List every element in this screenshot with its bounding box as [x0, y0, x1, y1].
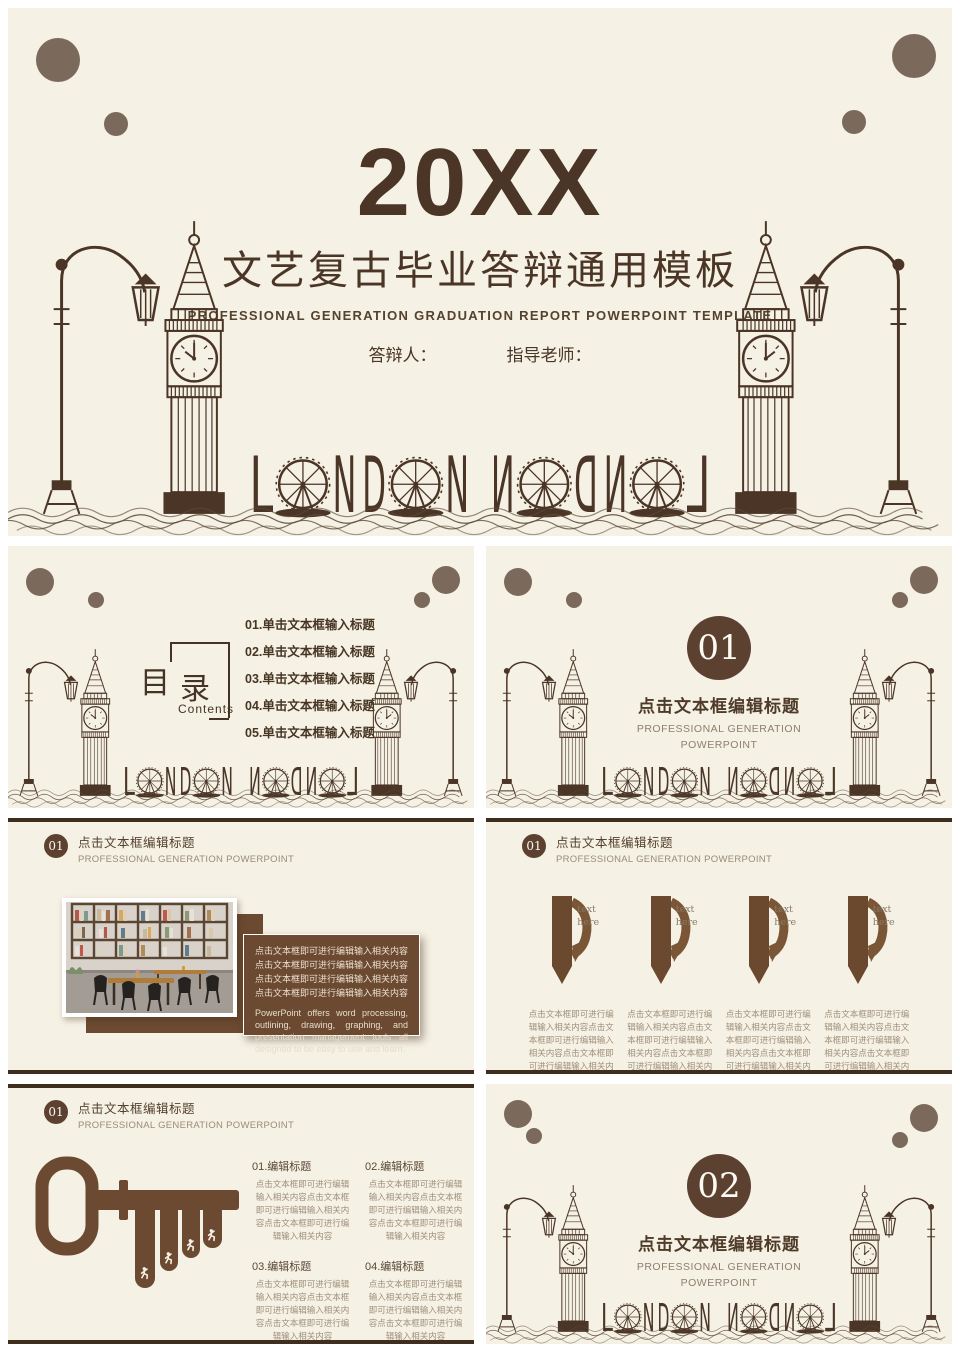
header-subtitle: PROFESSIONAL GENERATION POWERPOINT — [78, 854, 294, 865]
key-block-heading: 02.编辑标题 — [365, 1158, 466, 1174]
ribbon-item: text here 点击文本框即可进行编辑输入相关内容点击文本框即可进行编辑输入… — [719, 896, 818, 1074]
library-photo — [62, 898, 237, 1017]
ribbon-content-slide[interactable]: 01 点击文本框编辑标题 PROFESSIONAL GENERATION POW… — [486, 818, 952, 1074]
ribbon-label-line2: here — [873, 917, 895, 930]
ribbon-label-line1: text — [676, 904, 698, 917]
decor-dot — [892, 592, 908, 608]
header-title: 点击文本框编辑标题 — [78, 1098, 294, 1117]
header-title: 点击文本框编辑标题 — [78, 832, 294, 851]
library-photo-illustration — [66, 902, 233, 1013]
waves-band — [8, 786, 474, 808]
london-scene-left — [24, 215, 479, 522]
key-block: 02.编辑标题 点击文本框即可进行编辑输入相关内容点击文本框即可进行编辑输入相关… — [365, 1158, 466, 1243]
key-block-body: 点击文本框即可进行编辑输入相关内容点击文本框即可进行编辑输入相关内容点击文本框即… — [365, 1178, 466, 1243]
bottom-rule — [8, 1070, 474, 1074]
key-block-body: 点击文本框即可进行编辑输入相关内容点击文本框即可进行编辑输入相关内容点击文本框即… — [252, 1278, 353, 1343]
contents-slide[interactable]: 目 录 Contents 01.单击文本框输入标题 02.单击文本框输入标题 0… — [8, 546, 474, 808]
ribbon-label-line1: text — [774, 904, 796, 917]
ribbon-body-text: 点击文本框即可进行编辑输入相关内容点击文本框即可进行编辑输入相关内容点击文本框即… — [626, 1008, 714, 1074]
cover-slide[interactable]: 20XX 文艺复古毕业答辩通用模板 PROFESSIONAL GENERATIO… — [8, 8, 952, 536]
decor-dot — [88, 592, 104, 608]
ribbon-item: text here 点击文本框即可进行编辑输入相关内容点击文本框即可进行编辑输入… — [522, 896, 621, 1074]
top-rule — [8, 818, 474, 822]
key-block: 04.编辑标题 点击文本框即可进行编辑输入相关内容点击文本框即可进行编辑输入相关… — [365, 1258, 466, 1343]
section-01-slide[interactable]: 01 点击文本框编辑标题 PROFESSIONAL GENERATION POW… — [486, 546, 952, 808]
key-block-heading: 03.编辑标题 — [252, 1258, 353, 1274]
decor-dot — [26, 568, 54, 596]
ribbon-body-text: 点击文本框即可进行编辑输入相关内容点击文本框即可进行编辑输入相关内容点击文本框即… — [724, 1008, 812, 1074]
header-number-badge: 01 — [44, 834, 68, 858]
decor-dot — [526, 1128, 542, 1144]
key-text-blocks: 01.编辑标题 点击文本框即可进行编辑输入相关内容点击文本框即可进行编辑输入相关… — [252, 1158, 466, 1343]
section-02-slide[interactable]: 02 点击文本框编辑标题 PROFESSIONAL GENERATION POW… — [486, 1084, 952, 1344]
decor-dot — [566, 592, 582, 608]
decor-dot — [36, 38, 80, 82]
header-subtitle: PROFESSIONAL GENERATION POWERPOINT — [78, 1120, 294, 1131]
waves-band — [486, 1322, 952, 1344]
decor-dot — [432, 566, 460, 594]
ribbon-item: text here 点击文本框即可进行编辑输入相关内容点击文本框即可进行编辑输入… — [621, 896, 720, 1074]
london-scene-left — [488, 1182, 716, 1336]
london-scene-left — [10, 646, 238, 800]
decor-dot — [104, 112, 128, 136]
ribbon-label-line2: here — [774, 917, 796, 930]
decor-dot — [892, 34, 936, 78]
ribbon-body-text: 点击文本框即可进行编辑输入相关内容点击文本框即可进行编辑输入相关内容点击文本框即… — [823, 1008, 911, 1074]
london-scene-left — [488, 646, 716, 800]
ribbon-item: text here 点击文本框即可进行编辑输入相关内容点击文本框即可进行编辑输入… — [818, 896, 917, 1074]
top-rule — [8, 1084, 474, 1088]
ribbon-label-line2: here — [577, 917, 599, 930]
bottom-rule — [486, 1070, 952, 1074]
ribbon-label-line1: text — [577, 904, 599, 917]
london-scene-right-mirrored — [722, 1182, 950, 1336]
key-block-heading: 04.编辑标题 — [365, 1258, 466, 1274]
key-block: 01.编辑标题 点击文本框即可进行编辑输入相关内容点击文本框即可进行编辑输入相关… — [252, 1158, 353, 1243]
london-scene-right-mirrored — [722, 646, 950, 800]
key-block-body: 点击文本框即可进行编辑输入相关内容点击文本框即可进行编辑输入相关内容点击文本框即… — [365, 1278, 466, 1343]
waves-band — [8, 502, 952, 536]
london-scene-right-mirrored — [244, 646, 472, 800]
decor-dot — [504, 1100, 532, 1128]
waves-band — [486, 786, 952, 808]
template-preview-page: 20XX 文艺复古毕业答辩通用模板 PROFESSIONAL GENERATIO… — [0, 0, 960, 1352]
key-block-heading: 01.编辑标题 — [252, 1158, 353, 1174]
london-scene-right-mirrored — [481, 215, 936, 522]
body-textbox: 点击文本框即可进行编辑输入相关内容点击文本框即可进行编辑输入相关内容点击文本框即… — [243, 934, 420, 1036]
photo-content-slide[interactable]: 01 点击文本框编辑标题 PROFESSIONAL GENERATION POW… — [8, 818, 474, 1074]
ribbon-body-text: 点击文本框即可进行编辑输入相关内容点击文本框即可进行编辑输入相关内容点击文本框即… — [527, 1008, 615, 1074]
decor-dot — [910, 566, 938, 594]
key-diagram-icon — [35, 1156, 245, 1296]
key-block: 03.编辑标题 点击文本框即可进行编辑输入相关内容点击文本框即可进行编辑输入相关… — [252, 1258, 353, 1343]
decor-dot — [910, 1104, 938, 1132]
ribbon-label-line1: text — [873, 904, 895, 917]
decor-dot — [414, 592, 430, 608]
key-content-slide[interactable]: 01 点击文本框编辑标题 PROFESSIONAL GENERATION POW… — [8, 1084, 474, 1344]
ribbon-label-line2: here — [676, 917, 698, 930]
header-number-badge: 01 — [44, 1100, 68, 1124]
ribbon-items: text here 点击文本框即可进行编辑输入相关内容点击文本框即可进行编辑输入… — [522, 896, 916, 1074]
decor-dot — [842, 110, 866, 134]
body-text-cn: 点击文本框即可进行编辑输入相关内容点击文本框即可进行编辑输入相关内容点击文本框即… — [255, 944, 408, 1000]
key-block-body: 点击文本框即可进行编辑输入相关内容点击文本框即可进行编辑输入相关内容点击文本框即… — [252, 1178, 353, 1243]
top-rule — [486, 818, 952, 822]
body-text-en: PowerPoint offers word processing, outli… — [255, 1007, 408, 1055]
header-title: 点击文本框编辑标题 — [556, 832, 772, 851]
header-number-badge: 01 — [522, 834, 546, 858]
bottom-rule — [8, 1340, 474, 1344]
toc-item[interactable]: 01.单击文本框输入标题 — [245, 618, 375, 645]
decor-dot — [504, 568, 532, 596]
decor-dot — [892, 1132, 908, 1148]
header-subtitle: PROFESSIONAL GENERATION POWERPOINT — [556, 854, 772, 865]
